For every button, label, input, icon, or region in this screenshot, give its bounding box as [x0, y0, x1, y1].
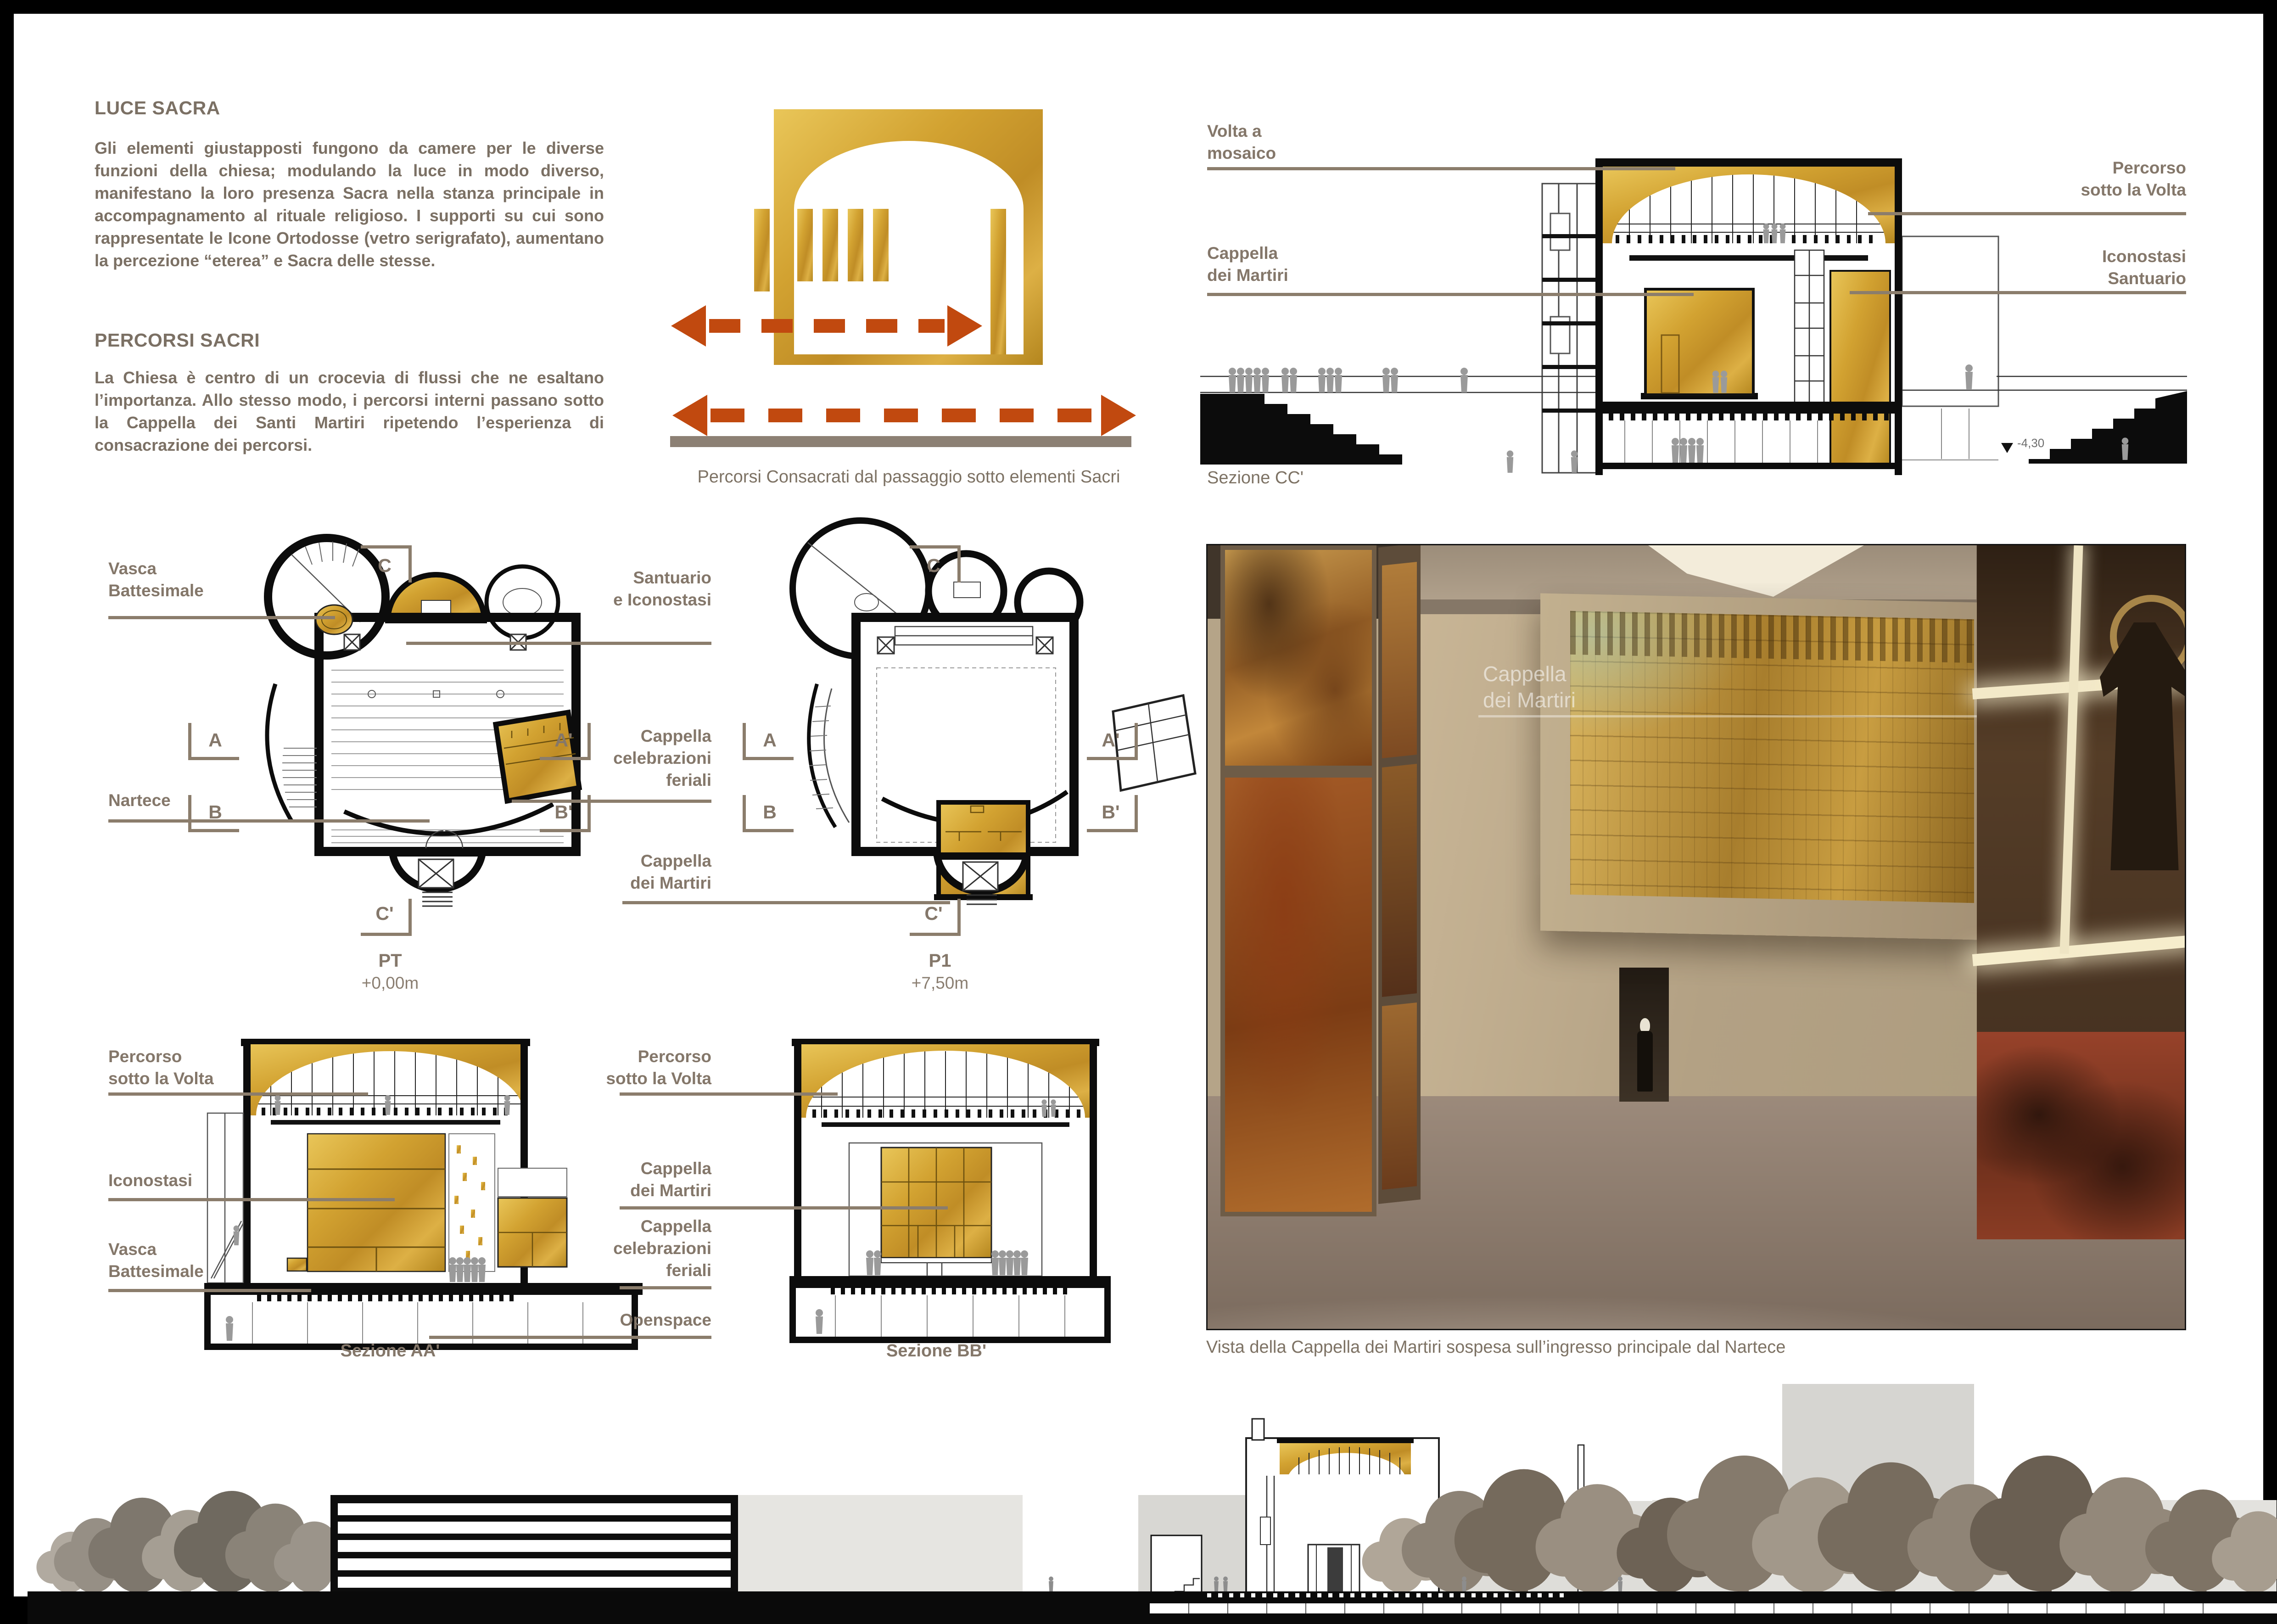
label-aa-iconostasi: Iconostasi: [108, 1170, 192, 1192]
marker-b: B: [188, 795, 239, 832]
pt-apse-stair: [419, 859, 453, 906]
marker-c: C: [910, 545, 961, 582]
label-percorso-sotto-volta: Percorso sotto la Volta: [2012, 157, 2186, 201]
render-backlit-seam-2: [1972, 935, 2186, 966]
marker-c-prime: C': [910, 899, 961, 936]
render-saint-figure: [2100, 622, 2186, 870]
title-percorsi-sacri: PERCORSI SACRI: [95, 330, 260, 351]
p1-void-edge: [895, 627, 1033, 645]
leader-line: [620, 1286, 711, 1289]
level-p1: +7,50m: [885, 973, 995, 993]
paragraph-luce-sacra: Gli elementi giustapposti fungono da cam…: [95, 137, 604, 272]
cc-wall-right: [1895, 158, 1902, 475]
p1-ramp-inner: [824, 689, 849, 823]
plan-p1-drawing: [762, 532, 1203, 996]
paragraph-percorsi-sacri: La Chiesa è centro di un crocevia di flu…: [95, 366, 604, 456]
render-right-mosaic-red: [1977, 1032, 2185, 1239]
caption-sezione-cc: Sezione CC': [1207, 467, 1304, 488]
caption-pt: PT: [335, 950, 445, 971]
diagram-arrow-outer: [672, 395, 1136, 436]
el-underground-base: [1150, 1613, 2277, 1624]
render-left-mosaic-top: [1225, 550, 1372, 766]
label-santuario-iconostasi: Santuario e Iconostasi: [542, 567, 711, 611]
site-elevation: [28, 1384, 2277, 1624]
render-chapel-figure-row: [1570, 611, 1974, 663]
render-angled-panel-2: [1382, 764, 1417, 997]
leader-line: [108, 1198, 395, 1201]
p1-ramp-outer: [809, 684, 835, 827]
marker-a: A: [188, 723, 239, 760]
leader-line: [620, 1206, 948, 1210]
cc-window-tower: [1795, 250, 1824, 404]
leader-line: [108, 819, 430, 823]
leader-line: [622, 901, 950, 904]
caption-p1: P1: [885, 950, 995, 971]
label-bb-martiri: Cappella dei Martiri: [542, 1158, 711, 1202]
el-underground-strip: [1150, 1603, 2277, 1613]
cc-basement-slab: [1595, 463, 1902, 469]
aa-vasca-block: [287, 1258, 307, 1271]
cc-floor-slab: [1595, 402, 1902, 414]
p1-ramp-steps: [809, 706, 833, 809]
diagram-ground-bar: [670, 436, 1131, 447]
render-watermark: Cappella dei Martiri: [1483, 661, 1576, 713]
diagram-caption: Percorsi Consacrati dal passaggio sotto …: [679, 466, 1138, 487]
render-right-mosaic-wall: [1977, 545, 2185, 1239]
p1-roof-light: [954, 582, 980, 598]
title-luce-sacra: LUCE SACRA: [95, 97, 220, 118]
render-priest-figure: [1637, 1031, 1653, 1092]
render-caption: Vista della Cappella dei Martiri sospesa…: [1206, 1337, 1785, 1358]
leader-line: [1850, 291, 2186, 294]
pt-narthex-curve: [267, 684, 291, 821]
pt-west-stairs: [282, 748, 317, 807]
cc-terrain-steps-right: [2029, 391, 2187, 464]
leader-line: [1207, 167, 1675, 170]
bb-floor-slab: [789, 1276, 1111, 1288]
render-watermark-line: [1478, 715, 2025, 717]
leader-line: [1868, 212, 2186, 215]
label-bb-feriali: Cappella celebrazioni feriali: [542, 1215, 711, 1282]
level-pt: +0,00m: [335, 973, 445, 993]
el-trees-left: [36, 1491, 355, 1594]
cc-level-marker-icon: [2001, 443, 2013, 453]
label-aa-percorso: Percorso sotto la Volta: [108, 1046, 214, 1090]
caption-sezione-aa: Sezione AA': [289, 1340, 491, 1361]
cc-service-tower: [1542, 184, 1597, 473]
presentation-board: LUCE SACRA Gli elementi giustapposti fun…: [14, 14, 2263, 1596]
label-vasca-battesimale: Vasca Battesimale: [108, 558, 204, 602]
label-openspace: Openspace: [542, 1309, 711, 1331]
label-volta-a-mosaico: Volta a mosaico: [1207, 120, 1276, 164]
label-nartece: Nartece: [108, 790, 171, 812]
el-backdrop-center: [738, 1495, 1023, 1593]
render-angled-panel-1: [1382, 562, 1417, 758]
marker-a-prime: A': [540, 723, 591, 760]
concept-diagram: [661, 96, 1147, 491]
bb-basement-columns: [835, 1295, 1065, 1337]
render-left-mosaic-bottom: [1225, 778, 1372, 1212]
render-view-nartece: Cappella dei Martiri: [1206, 544, 2186, 1330]
cc-level-text: -4,30: [2017, 436, 2044, 450]
cc-iconostasis-panel: [1830, 271, 1890, 468]
label-cappella-martiri-plan: Cappella dei Martiri: [542, 850, 711, 894]
render-left-mosaic-angled: [1378, 544, 1421, 1204]
label-cc-cappella-martiri: Cappella dei Martiri: [1207, 242, 1288, 286]
bb-wall-right: [1090, 1044, 1097, 1288]
caption-sezione-bb: Sezione BB': [835, 1340, 1037, 1361]
bb-floor-teeth: [831, 1288, 1067, 1294]
cc-wall-left: [1595, 158, 1603, 475]
leader-line: [108, 1092, 368, 1096]
leader-line: [429, 1336, 711, 1339]
marker-b-prime: B': [540, 795, 591, 832]
marker-a-prime: A': [1087, 723, 1138, 760]
cc-terrain-steps-left: [1200, 394, 1402, 465]
marker-b-prime: B': [1087, 795, 1138, 832]
leader-line: [108, 616, 335, 619]
aa-wall-left: [243, 1044, 251, 1283]
cc-roof-slab: [1595, 158, 1902, 167]
marker-a: A: [743, 723, 794, 760]
render-left-mosaic-frame: [1220, 545, 1376, 1216]
cc-right-annex: [1902, 236, 1998, 406]
el-ground-solid-left: [28, 1603, 1150, 1624]
leader-line: [620, 1092, 838, 1096]
leader-line: [108, 1289, 311, 1292]
render-angled-panel-3: [1382, 1002, 1417, 1190]
aa-floor-teeth: [257, 1295, 514, 1301]
el-ground-band: [28, 1591, 2277, 1603]
sezione-bb-drawing: [776, 1030, 1125, 1352]
label-iconostasi-santuario: Iconostasi Santuario: [2012, 246, 2186, 290]
label-bb-percorso: Percorso sotto la Volta: [542, 1046, 711, 1090]
label-aa-vasca: Vasca Battesimale: [108, 1238, 204, 1282]
render-backlit-seam-vertical: [2059, 545, 2083, 954]
bb-wall-left: [794, 1044, 801, 1288]
leader-line: [406, 642, 711, 645]
el-slab-building: [330, 1495, 738, 1594]
marker-b: B: [743, 795, 794, 832]
leader-line: [1207, 293, 1694, 296]
marker-c-prime: C': [361, 899, 412, 936]
marker-c: C: [361, 545, 412, 582]
